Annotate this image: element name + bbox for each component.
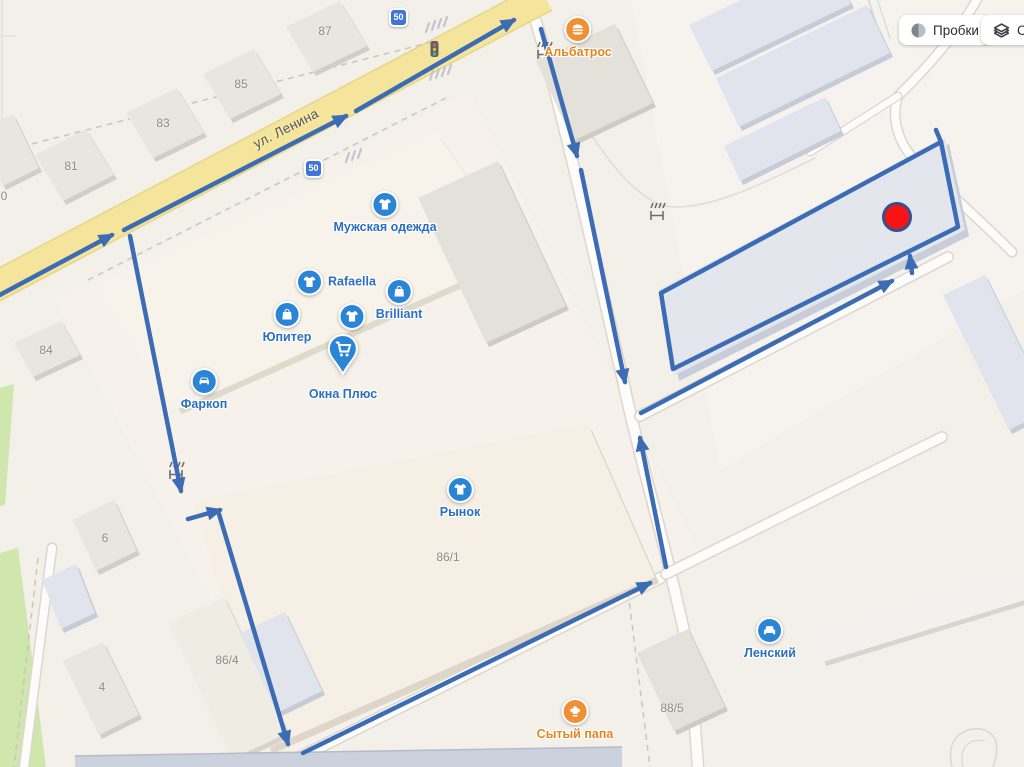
poi-okna-plus[interactable]: Окна Плюс: [309, 334, 377, 401]
traffic-light-icon: [431, 41, 439, 57]
map-view[interactable]: ул. Ленина 50 50 87 85 83 81 0 84 6 4 86…: [0, 0, 1024, 767]
building-number: 84: [39, 343, 52, 357]
poi-albatros[interactable]: Альбатрос: [544, 16, 612, 59]
poi-clothing-unnamed[interactable]: [339, 303, 366, 333]
building-number: 4: [99, 680, 106, 694]
tshirt-icon: [447, 476, 474, 503]
poi-label: Ленский: [744, 647, 796, 660]
tshirt-icon: [372, 191, 399, 218]
poi-brilliant[interactable]: Brilliant: [376, 278, 423, 321]
shopping-bag-icon: [274, 301, 301, 328]
tshirt-icon: [339, 303, 366, 330]
building-number: 81: [64, 159, 77, 173]
tshirt-icon: [296, 269, 323, 296]
poi-label: Окна Плюс: [309, 388, 377, 401]
building-number: 85: [234, 77, 247, 91]
shopping-cart-icon: [327, 334, 359, 376]
poi-yupiter[interactable]: Юпитер: [263, 301, 312, 344]
traffic-indicator-icon: [911, 23, 926, 38]
poi-farkop[interactable]: Фаркоп: [181, 368, 228, 411]
traffic-button[interactable]: Пробки: [899, 15, 991, 45]
shopping-bag-icon: [385, 278, 412, 305]
building-number: 88/5: [660, 701, 683, 715]
speed-limit-sign: 50: [304, 159, 323, 178]
poi-label: Рынок: [440, 506, 480, 519]
map-canvas[interactable]: [0, 0, 1024, 767]
route-segment: [910, 256, 912, 273]
building-number: 86/4: [215, 653, 238, 667]
poi-label: Альбатрос: [544, 46, 612, 59]
poi-label: Мужская одежда: [333, 221, 436, 234]
chef-hat-icon: [561, 698, 588, 725]
poi-label: Фаркоп: [181, 398, 228, 411]
armchair-icon: [756, 617, 783, 644]
poi-label: Сытый папа: [537, 728, 614, 741]
layers-button[interactable]: Сл: [981, 15, 1024, 45]
building-number: 86/1: [436, 550, 459, 564]
building-number: 0: [1, 189, 8, 203]
poi-rafaella[interactable]: Rafaella: [296, 269, 376, 296]
building-number: 83: [156, 116, 169, 130]
destination-marker: [884, 204, 911, 231]
speed-limit-sign: 50: [389, 8, 408, 27]
layers-icon: [993, 22, 1010, 39]
building-number: 87: [318, 24, 331, 38]
poi-lenskiy[interactable]: Ленский: [744, 617, 796, 660]
poi-label: Rafaella: [328, 275, 376, 288]
poi-label: Brilliant: [376, 308, 423, 321]
layers-button-label: Сл: [1017, 23, 1024, 38]
poi-label: Юпитер: [263, 331, 312, 344]
poi-rynok[interactable]: Рынок: [440, 476, 480, 519]
building-number: 6: [102, 531, 109, 545]
car-icon: [190, 368, 217, 395]
poi-muzhskaya-odezhda[interactable]: Мужская одежда: [333, 191, 436, 234]
poi-sytyy-papa[interactable]: Сытый папа: [537, 698, 614, 741]
traffic-button-label: Пробки: [933, 23, 979, 38]
burger-icon: [564, 16, 591, 43]
